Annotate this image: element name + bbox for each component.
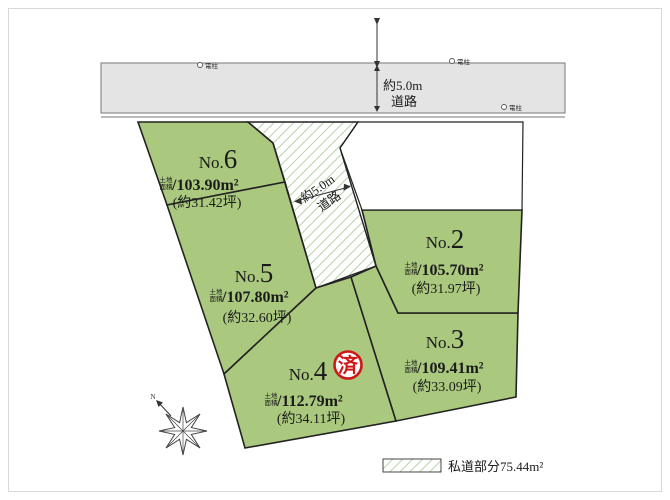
lot-no3-area-prefix-bottom: 面積 bbox=[405, 365, 419, 374]
white-parcel-polygon bbox=[340, 122, 523, 210]
lot-no3-area: /109.41m² bbox=[416, 360, 484, 377]
lot-no2-tsubo: (約31.97坪) bbox=[412, 281, 481, 297]
legend-label: 私道部分75.44m² bbox=[448, 459, 543, 474]
sold-stamp-label: 済 bbox=[338, 353, 359, 377]
top-road-width-label: 約5.0m bbox=[383, 78, 422, 93]
lot-no6-area: /103.90m² bbox=[171, 177, 239, 194]
lot-no5-area-prefix-top: 土地 bbox=[210, 287, 224, 296]
pole-icon bbox=[502, 105, 507, 110]
lot-no4-tsubo: (約34.11坪) bbox=[277, 411, 346, 427]
top-road: 約5.0m 道路 bbox=[101, 24, 565, 117]
lot-no5-tsubo: (約32.60坪) bbox=[223, 310, 292, 326]
lot-no4-area-prefix-bottom: 面積 bbox=[265, 398, 279, 407]
top-road-name-label: 道路 bbox=[391, 94, 417, 109]
compass-north-label: N bbox=[150, 393, 155, 401]
lot-no3-tsubo: (約33.09坪) bbox=[413, 379, 482, 395]
lot-no3-area-prefix-top: 土地 bbox=[405, 358, 419, 367]
compass-rose-icon: N bbox=[150, 393, 207, 455]
pole-icon bbox=[450, 59, 455, 64]
lot-no5-area: /107.80m² bbox=[221, 289, 289, 306]
lot-no6-area-prefix-bottom: 面積 bbox=[160, 182, 174, 191]
pole-icon bbox=[198, 63, 203, 68]
legend: 私道部分75.44m² bbox=[383, 459, 543, 474]
lot-no2-area-prefix-top: 土地 bbox=[405, 260, 419, 269]
pole-label: 電柱 bbox=[509, 103, 523, 112]
site-plan-svg: 約5.0m 道路 電柱 電柱 電柱 約5.0m 道路 No.6 土地 面積 /1… bbox=[0, 0, 670, 500]
lot-map-page: 約5.0m 道路 電柱 電柱 電柱 約5.0m 道路 No.6 土地 面積 /1… bbox=[0, 0, 670, 500]
lot-no5-area-prefix-bottom: 面積 bbox=[210, 294, 224, 303]
sold-stamp: 済 bbox=[335, 352, 362, 379]
lot-no4-area-prefix-top: 土地 bbox=[265, 391, 279, 400]
lot-no2-area-prefix-bottom: 面積 bbox=[405, 267, 419, 276]
pole-label: 電柱 bbox=[457, 57, 471, 66]
lot-no6-area-prefix-top: 土地 bbox=[160, 175, 174, 184]
pole-label: 電柱 bbox=[205, 61, 219, 70]
lot-no4-area: /112.79m² bbox=[276, 393, 343, 410]
legend-hatch-swatch bbox=[383, 459, 441, 472]
lot-no6-tsubo: (約31.42坪) bbox=[173, 195, 242, 211]
top-road-band bbox=[101, 63, 565, 113]
lot-no2-area: /105.70m² bbox=[416, 262, 484, 279]
